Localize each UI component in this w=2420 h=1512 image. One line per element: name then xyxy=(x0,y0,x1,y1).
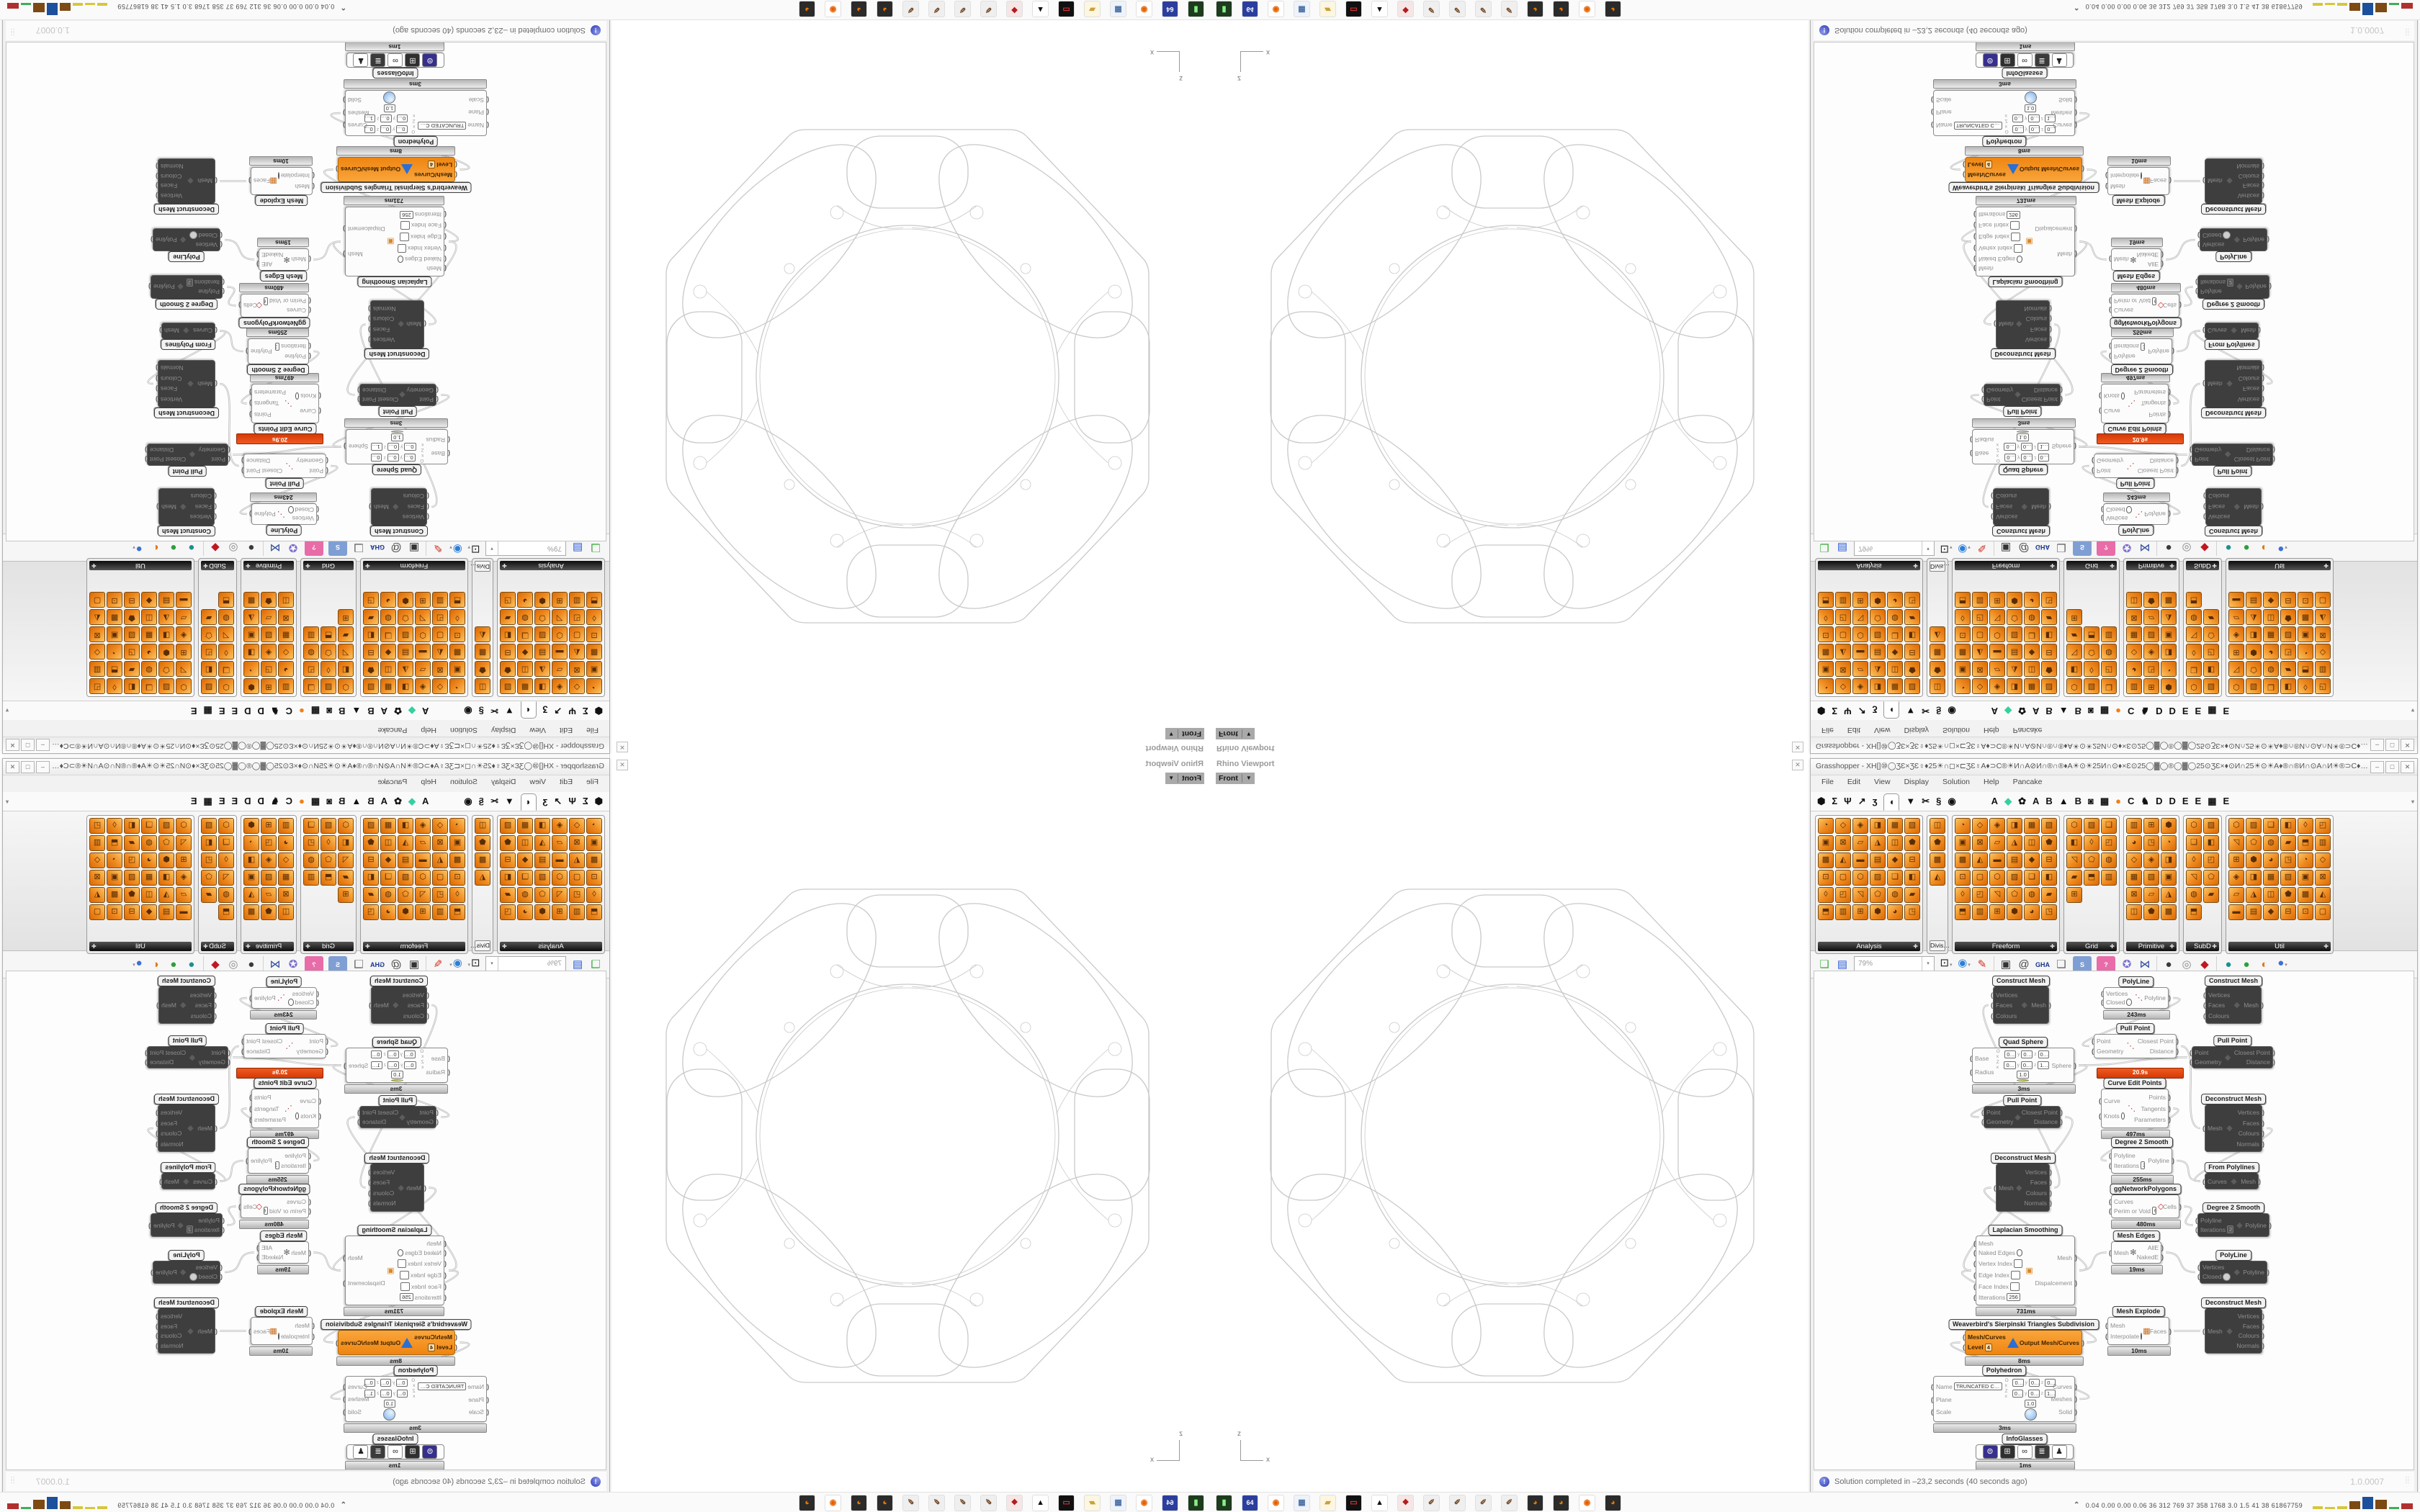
balloons-icon[interactable]: ✪ xyxy=(287,540,300,556)
gh-node-qs[interactable]: BaseRadiusO x0.0y0.0z0.0Z x0.0y0.0z1.01.… xyxy=(1972,429,2074,464)
component-icon[interactable]: ▨ xyxy=(534,870,550,886)
component-icon[interactable]: ▱ xyxy=(1852,661,1868,677)
ribbon-tab-22[interactable]: D xyxy=(2156,703,2162,718)
component-icon[interactable]: ◰ xyxy=(2101,661,2117,677)
ribbon-group-label[interactable]: Grid✚ xyxy=(2066,942,2117,951)
calculator-icon[interactable]: ▦ xyxy=(1110,1,1126,18)
component-icon[interactable]: ⬢ xyxy=(398,904,413,920)
firefox-icon[interactable]: ◉ xyxy=(1579,1495,1595,1511)
palette-icon[interactable]: ✐ xyxy=(928,1495,945,1511)
infoglasses-widget-icon[interactable]: ♟ xyxy=(2052,1445,2067,1459)
component-icon[interactable]: ◫ xyxy=(475,678,490,694)
component-icon[interactable]: ▧ xyxy=(1904,678,1920,694)
maximize-button[interactable]: □ xyxy=(2385,739,2399,751)
component-icon[interactable]: ◨ xyxy=(2007,678,2022,694)
ribbon-tab-14[interactable]: B xyxy=(367,703,374,718)
component-icon[interactable]: ▥ xyxy=(89,661,105,677)
component-icon[interactable]: ◈ xyxy=(176,626,192,642)
ribbon-tab-25[interactable]: E xyxy=(2195,703,2202,718)
gh-node-cm1[interactable]: VerticesFacesColours◆Mesh xyxy=(1993,488,2049,526)
component-icon[interactable]: ❏ xyxy=(1887,870,1903,886)
component-icon[interactable]: ◆ xyxy=(380,644,396,660)
gh-node-ig[interactable]: ⊜⊞∞≣♟ xyxy=(1976,1444,2074,1459)
component-icon[interactable]: ▨ xyxy=(2084,818,2099,834)
infoglasses-widget-icon[interactable]: ♟ xyxy=(354,1445,369,1459)
orange-ball-icon[interactable]: ◐ xyxy=(2258,540,2271,556)
ribbon-tab-26[interactable]: ▦ xyxy=(2208,794,2216,809)
component-icon[interactable]: ⊟ xyxy=(363,644,379,660)
folder-icon[interactable]: ▰ xyxy=(1319,1,1336,18)
ribbon-tab-4[interactable]: ʒ xyxy=(543,703,548,718)
gh-node-pp2[interactable]: PointGeometry◆Closest PointDistance xyxy=(147,1046,228,1068)
component-icon[interactable]: ◳ xyxy=(500,592,516,608)
component-icon[interactable]: ◍ xyxy=(2101,644,2117,660)
close-icon[interactable]: ✕ xyxy=(617,760,628,770)
component-icon[interactable]: ▬ xyxy=(415,852,431,868)
component-icon[interactable]: ⊡ xyxy=(449,870,465,886)
gh-node-pl1[interactable]: VerticesClosed⋱Polyline xyxy=(251,987,317,1009)
help-box-icon[interactable]: ? xyxy=(2097,539,2115,557)
terminal-icon[interactable]: ▮ xyxy=(1216,1,1232,18)
gh-node-d2sd[interactable]: PolylineIterations2◆Polyline xyxy=(151,275,223,299)
component-icon[interactable]: ◭ xyxy=(475,626,490,642)
gh-node-d2sd[interactable]: PolylineIterations2◆Polyline xyxy=(151,1213,223,1237)
component-icon[interactable]: ⬡ xyxy=(338,818,354,834)
ribbon-tab-16[interactable]: B xyxy=(339,703,345,718)
component-icon[interactable]: ◇ xyxy=(432,678,448,694)
component-icon[interactable]: ◹ xyxy=(218,626,234,642)
component-icon[interactable]: ◕ xyxy=(278,835,294,851)
component-icon[interactable]: ◰ xyxy=(201,852,217,868)
component-icon[interactable]: ◔ xyxy=(2161,661,2177,677)
component-icon[interactable]: ◫ xyxy=(2126,592,2142,608)
ribbon-group-label[interactable]: Analysis✚ xyxy=(500,561,602,570)
component-icon[interactable]: ◊ xyxy=(449,609,465,625)
gh-node-lap[interactable]: MeshNaked EdgesVertex IndexEdge IndexFac… xyxy=(1976,1236,2075,1305)
component-icon[interactable]: ◊ xyxy=(2084,835,2099,851)
grasshopper-title-bar[interactable]: Grasshopper - XH[]⑩◯ƷƐ×ƷƐ♀♦25☀∩◻×⊏ƷƐ♀A♦⊃… xyxy=(3,737,609,753)
palette-icon[interactable]: ✐ xyxy=(902,1,919,18)
component-icon[interactable]: ◊ xyxy=(321,661,336,677)
gh-node-pp1[interactable]: PointGeometry⋱Closest PointDistance xyxy=(2094,454,2177,478)
component-icon[interactable]: ◮ xyxy=(2007,835,2022,851)
component-icon[interactable]: ◈ xyxy=(1989,818,2005,834)
close-icon[interactable]: ✕ xyxy=(617,742,628,752)
component-icon[interactable]: ▱ xyxy=(2228,887,2244,903)
ribbon-tab-23[interactable]: D xyxy=(2169,703,2175,718)
find-icon[interactable]: S xyxy=(328,539,347,557)
gh-node-mx[interactable]: MeshInterpolate▦Faces xyxy=(2107,1317,2169,1345)
component-icon[interactable]: ⊠ xyxy=(1972,835,1988,851)
gh-node-mx[interactable]: MeshInterpolate▦Faces xyxy=(251,167,313,195)
component-icon[interactable]: ◮ xyxy=(2246,887,2262,903)
ribbon-tab-23[interactable]: D xyxy=(2169,794,2175,809)
component-icon[interactable]: ⊡ xyxy=(2298,904,2313,920)
component-icon[interactable]: ⬒ xyxy=(107,661,122,677)
component-icon[interactable]: ◰ xyxy=(569,887,585,903)
menu-item-pancake[interactable]: Pancake xyxy=(2013,778,2043,792)
component-icon[interactable]: ◫ xyxy=(2263,609,2279,625)
component-icon[interactable]: ◹ xyxy=(552,609,568,625)
component-icon[interactable]: ◨ xyxy=(534,678,550,694)
component-icon[interactable]: ▥ xyxy=(569,592,585,608)
component-icon[interactable]: ▥ xyxy=(2315,661,2331,677)
ribbon-tab-15[interactable]: ▲ xyxy=(2059,794,2069,809)
component-icon[interactable]: ▣ xyxy=(1818,835,1834,851)
calculator-icon[interactable]: ▦ xyxy=(1110,1495,1126,1511)
component-icon[interactable]: ◆ xyxy=(141,904,157,920)
component-icon[interactable]: ▰ xyxy=(338,626,354,642)
component-icon[interactable]: ◹ xyxy=(2228,661,2244,677)
component-icon[interactable]: ◆ xyxy=(2263,592,2279,608)
component-icon[interactable]: ⬒ xyxy=(2298,661,2313,677)
component-icon[interactable]: ▨ xyxy=(1870,870,1886,886)
component-icon[interactable]: ⬟ xyxy=(2143,592,2159,608)
group-expand-icon[interactable]: ✚ xyxy=(2323,561,2329,570)
component-icon[interactable]: ▥ xyxy=(1972,592,1988,608)
ribbon-tab-17[interactable]: ◙ xyxy=(2088,703,2094,718)
component-icon[interactable]: ◇ xyxy=(1972,818,1988,834)
blender-icon[interactable]: ◕ xyxy=(799,1495,815,1511)
gh-node-pld[interactable]: VerticesClosed◆Polyline xyxy=(153,228,220,251)
component-icon[interactable]: ⬒ xyxy=(449,592,465,608)
component-icon[interactable]: ▨ xyxy=(158,818,174,834)
blender-icon[interactable]: ◕ xyxy=(1553,1,1569,18)
component-icon[interactable]: ◹ xyxy=(1989,887,2005,903)
component-icon[interactable]: ◮ xyxy=(1870,661,1886,677)
component-icon[interactable]: ⊠ xyxy=(2126,609,2142,625)
component-icon[interactable]: ▧ xyxy=(500,678,516,694)
component-icon[interactable]: ▬ xyxy=(1852,852,1868,868)
component-icon[interactable]: ◍ xyxy=(517,887,533,903)
ribbon-tab-10[interactable]: A xyxy=(422,703,429,718)
component-icon[interactable]: ◆ xyxy=(2024,852,2040,868)
menu-item-pancake[interactable]: Pancake xyxy=(378,778,408,792)
component-icon[interactable]: ⬟ xyxy=(1904,835,1920,851)
component-icon[interactable]: ▦ xyxy=(2263,626,2279,642)
ribbon-tab-0[interactable]: ⬢ xyxy=(1817,703,1825,718)
component-icon[interactable]: ▱ xyxy=(2143,609,2159,625)
component-icon[interactable]: ▧ xyxy=(363,678,379,694)
component-icon[interactable]: ◕ xyxy=(141,644,157,660)
component-icon[interactable]: ⬠ xyxy=(321,644,336,660)
component-icon[interactable]: ⊟ xyxy=(124,904,140,920)
component-icon[interactable]: ◈ xyxy=(415,818,431,834)
component-icon[interactable]: ◹ xyxy=(415,887,431,903)
ribbon-tab-1[interactable]: Σ xyxy=(583,703,588,718)
blender-icon[interactable]: ◕ xyxy=(1605,1,1621,18)
component-icon[interactable]: ◍ xyxy=(380,609,396,625)
component-icon[interactable]: ◭ xyxy=(2315,609,2331,625)
component-icon[interactable]: ⊠ xyxy=(1972,661,1988,677)
component-icon[interactable]: ▥ xyxy=(2126,818,2142,834)
component-icon[interactable]: ▤ xyxy=(1870,644,1886,660)
component-icon[interactable]: ❏ xyxy=(141,818,157,834)
gh-node-cm1[interactable]: VerticesFacesColours◆Mesh xyxy=(371,488,427,526)
component-icon[interactable]: ◫ xyxy=(475,818,490,834)
component-icon[interactable]: ⬢ xyxy=(534,592,550,608)
component-icon[interactable]: ▤ xyxy=(534,644,550,660)
component-icon[interactable]: ▤ xyxy=(2007,852,2022,868)
component-icon[interactable]: ◊ xyxy=(2186,644,2202,660)
component-icon[interactable]: ⬠ xyxy=(2246,835,2262,851)
component-icon[interactable]: ▩ xyxy=(2298,887,2313,903)
component-icon[interactable]: ◰ xyxy=(303,835,319,851)
component-icon[interactable]: ▣ xyxy=(243,870,259,886)
component-icon[interactable]: ▨ xyxy=(158,678,174,694)
component-icon[interactable]: ◳ xyxy=(2041,592,2057,608)
gh-node-dmr2[interactable]: Mesh◆VerticesFacesColoursNormals xyxy=(158,158,215,204)
ribbon-tab-3[interactable]: ↗ xyxy=(1858,794,1866,809)
minimize-button[interactable]: – xyxy=(36,761,50,773)
component-icon[interactable]: ▨ xyxy=(534,626,550,642)
component-icon[interactable]: ◊ xyxy=(586,609,602,625)
component-icon[interactable]: ◧ xyxy=(2203,661,2219,677)
component-icon[interactable]: ◨ xyxy=(398,818,413,834)
component-icon[interactable]: ◰ xyxy=(2315,678,2331,694)
component-icon[interactable]: ◧ xyxy=(2280,818,2296,834)
component-icon[interactable]: ▱ xyxy=(1989,835,2005,851)
component-icon[interactable]: ◊ xyxy=(1818,609,1834,625)
palette-icon[interactable]: ✐ xyxy=(1475,1495,1492,1511)
gem-icon[interactable]: ◆ xyxy=(209,540,222,556)
gh-node-dmr1[interactable]: Mesh◆VerticesFacesColoursNormals xyxy=(2205,1104,2262,1152)
ribbon-tab-18[interactable]: ▦ xyxy=(2100,794,2109,809)
infoglasses-widget-icon[interactable]: ⊜ xyxy=(423,1445,438,1459)
component-icon[interactable]: ⬡ xyxy=(1989,626,2005,642)
component-icon[interactable]: ◈ xyxy=(2228,870,2244,886)
ribbon-group-label[interactable]: Divis… xyxy=(475,940,490,951)
component-icon[interactable]: ⬟ xyxy=(363,835,379,851)
component-icon[interactable]: ◮ xyxy=(398,661,413,677)
component-icon[interactable]: ⊞ xyxy=(2228,852,2244,868)
component-icon[interactable]: ▧ xyxy=(2143,626,2159,642)
ribbon-group-label[interactable]: Grid✚ xyxy=(303,561,354,570)
ribbon-tab-19[interactable]: ● xyxy=(299,794,305,809)
save-file-icon[interactable]: ▤ xyxy=(571,540,584,556)
group-expand-icon[interactable]: ✚ xyxy=(2110,561,2115,570)
component-icon[interactable]: ◧ xyxy=(124,678,140,694)
component-icon[interactable]: ▧ xyxy=(124,870,140,886)
ribbon-tab-19[interactable]: ● xyxy=(2115,794,2121,809)
galapagos-icon[interactable]: ⋈ xyxy=(269,540,282,556)
component-icon[interactable]: ⊠ xyxy=(89,626,105,642)
component-icon[interactable]: ⬟ xyxy=(124,887,140,903)
component-icon[interactable]: ⬠ xyxy=(398,609,413,625)
palette-icon[interactable]: ✐ xyxy=(1475,1,1492,18)
ribbon-tab-25[interactable]: E xyxy=(219,794,225,809)
vhs-icon[interactable]: ▭ xyxy=(1058,1495,1075,1511)
component-icon[interactable]: ⬢ xyxy=(2007,592,2022,608)
component-icon[interactable]: ▰ xyxy=(1904,609,1920,625)
component-icon[interactable]: ◧ xyxy=(201,835,217,851)
component-icon[interactable]: ⬡ xyxy=(1852,626,1868,642)
component-icon[interactable]: ▬ xyxy=(552,852,568,868)
component-icon[interactable]: ▢ xyxy=(569,870,585,886)
gh-node-dmr1[interactable]: Mesh◆VerticesFacesColoursNormals xyxy=(158,360,215,408)
green-ball-icon[interactable]: ● xyxy=(2240,540,2253,556)
gh-node-dmr2[interactable]: Mesh◆VerticesFacesColoursNormals xyxy=(158,1308,215,1354)
component-icon[interactable]: ◍ xyxy=(2186,609,2202,625)
remote-panel-icon[interactable]: @ xyxy=(390,540,403,556)
component-icon[interactable]: ⬡ xyxy=(218,678,234,694)
component-icon[interactable]: ▦ xyxy=(141,626,157,642)
ribbon-tab-6[interactable]: ▼ xyxy=(505,703,514,718)
component-icon[interactable]: ◕ xyxy=(1887,592,1903,608)
mountain-icon[interactable]: ▲ xyxy=(1371,1495,1388,1511)
component-icon[interactable]: ⊞ xyxy=(2066,887,2082,903)
component-icon[interactable]: ▨ xyxy=(2203,818,2219,834)
gh-node-lap[interactable]: MeshNaked EdgesVertex IndexEdge IndexFac… xyxy=(345,1236,444,1305)
component-icon[interactable]: ⊞ xyxy=(1989,904,2005,920)
component-icon[interactable]: ▦ xyxy=(517,818,533,834)
ribbon-group-label[interactable]: Primitive✚ xyxy=(243,561,294,570)
component-icon[interactable]: ◧ xyxy=(2066,835,2082,851)
component-icon[interactable]: ⬒ xyxy=(449,904,465,920)
ribbon-tab-6[interactable]: ▼ xyxy=(1906,794,1915,809)
ribbon-tab-7[interactable]: ✂ xyxy=(1922,794,1930,809)
component-icon[interactable]: ⬠ xyxy=(1870,609,1886,625)
group-expand-icon[interactable]: ✚ xyxy=(502,561,507,570)
infoglasses-widget-icon[interactable]: ∞ xyxy=(388,53,403,67)
component-icon[interactable]: ◮ xyxy=(2161,887,2177,903)
group-expand-icon[interactable]: ✚ xyxy=(203,561,208,570)
zoom-level-combo[interactable]: 79%▾ xyxy=(485,539,566,556)
firefox-icon[interactable]: ◉ xyxy=(825,1,841,18)
component-icon[interactable]: ▱ xyxy=(415,661,431,677)
component-icon[interactable]: ▨ xyxy=(2007,870,2022,886)
component-icon[interactable]: ▨ xyxy=(2084,678,2099,694)
component-icon[interactable]: ◧ xyxy=(124,818,140,834)
component-icon[interactable]: ▬ xyxy=(2228,904,2244,920)
group-expand-icon[interactable]: ✚ xyxy=(2050,942,2055,951)
group-expand-icon[interactable]: ✚ xyxy=(246,942,251,951)
close-button[interactable]: ✕ xyxy=(2401,739,2414,751)
component-icon[interactable]: ⬡ xyxy=(176,818,192,834)
gh-node-d2sd[interactable]: PolylineIterations2◆Polyline xyxy=(2197,275,2269,299)
ribbon-tab-7[interactable]: ✂ xyxy=(490,703,498,718)
component-icon[interactable]: ⬒ xyxy=(586,592,602,608)
component-icon[interactable]: ◰ xyxy=(2203,644,2219,660)
ribbon-tab-15[interactable]: ▲ xyxy=(351,703,361,718)
ribbon-group-label[interactable]: Grid✚ xyxy=(303,942,354,951)
ribbon-tab-10[interactable]: A xyxy=(1991,794,1998,809)
component-icon[interactable]: ◊ xyxy=(2186,852,2202,868)
viewport-filter-icon[interactable]: ▣ xyxy=(408,540,421,556)
component-icon[interactable]: ⬒ xyxy=(1955,904,1971,920)
component-icon[interactable]: ◍ xyxy=(2263,661,2279,677)
component-icon[interactable]: ◍ xyxy=(303,852,319,868)
component-icon[interactable]: ⊡ xyxy=(586,626,602,642)
group-expand-icon[interactable]: ✚ xyxy=(1913,942,1918,951)
resize-grip-icon[interactable]: ∶∶∶∶ xyxy=(10,24,22,35)
pattern-icon[interactable]: ❖ xyxy=(1397,1,1414,18)
viewport-view-dropdown[interactable]: Front ▼ xyxy=(1165,773,1204,784)
component-icon[interactable]: ◮ xyxy=(2161,609,2177,625)
component-icon[interactable]: ◇ xyxy=(278,644,294,660)
component-icon[interactable]: ▥ xyxy=(432,904,448,920)
gh-node-ggn[interactable]: CurvesPerim or Void65536◇Cells xyxy=(241,1194,309,1218)
component-icon[interactable]: ⊞ xyxy=(415,904,431,920)
component-icon[interactable]: ◹ xyxy=(1852,887,1868,903)
component-icon[interactable]: ⬢ xyxy=(243,678,259,694)
component-icon[interactable]: ◊ xyxy=(586,887,602,903)
ribbon-tab-9[interactable]: ◉ xyxy=(464,794,472,809)
component-icon[interactable]: ⊞ xyxy=(2066,609,2082,625)
gh-node-dml[interactable]: Mesh◆VerticesFacesColoursNormals xyxy=(1996,300,2050,348)
blender-icon[interactable]: ◕ xyxy=(877,1495,893,1511)
component-icon[interactable]: ⬡ xyxy=(176,678,192,694)
close-button[interactable]: ✕ xyxy=(6,739,19,751)
component-icon[interactable]: ▱ xyxy=(415,835,431,851)
component-icon[interactable]: ▥ xyxy=(2101,870,2117,886)
component-icon[interactable]: ⊠ xyxy=(1835,661,1851,677)
component-icon[interactable]: ⬢ xyxy=(243,818,259,834)
palette-icon[interactable]: ✐ xyxy=(954,1,971,18)
component-icon[interactable]: ◰ xyxy=(89,678,105,694)
cluster-icon[interactable]: ● xyxy=(2162,540,2175,556)
component-icon[interactable]: ⬒ xyxy=(321,870,336,886)
component-icon[interactable]: ⬠ xyxy=(158,835,174,851)
component-icon[interactable]: ◔ xyxy=(2298,852,2313,868)
component-icon[interactable]: ◫ xyxy=(517,661,533,677)
component-icon[interactable]: ⊟ xyxy=(2280,592,2296,608)
component-icon[interactable]: ◮ xyxy=(243,887,259,903)
component-icon[interactable]: ◆ xyxy=(141,592,157,608)
component-icon[interactable]: ◇ xyxy=(2126,852,2142,868)
component-icon[interactable]: ⊠ xyxy=(89,870,105,886)
component-icon[interactable]: ⊡ xyxy=(1955,626,1971,642)
ribbon-tab-24[interactable]: E xyxy=(2182,794,2189,809)
component-icon[interactable]: ▢ xyxy=(89,904,105,920)
gh-node-cep[interactable]: CurveKnots⋱PointsTangentsParameters xyxy=(251,384,319,423)
component-icon[interactable]: ❏ xyxy=(2263,818,2279,834)
component-icon[interactable]: ⊟ xyxy=(500,644,516,660)
gh-node-dml[interactable]: Mesh◆VerticesFacesColoursNormals xyxy=(370,1164,424,1212)
component-icon[interactable]: ⊡ xyxy=(586,870,602,886)
ribbon-tab-13[interactable]: A xyxy=(381,794,387,809)
component-icon[interactable]: ▣ xyxy=(586,661,602,677)
component-icon[interactable]: ⬡ xyxy=(338,678,354,694)
component-icon[interactable]: ◭ xyxy=(2315,887,2331,903)
component-icon[interactable]: ◹ xyxy=(2066,852,2082,868)
gh-node-dmr2[interactable]: Mesh◆VerticesFacesColoursNormals xyxy=(2205,1308,2262,1354)
ribbon-tab-1[interactable]: Σ xyxy=(583,794,588,809)
component-icon[interactable]: ◈ xyxy=(1852,678,1868,694)
menu-item-help[interactable]: Help xyxy=(421,778,436,792)
component-icon[interactable]: ◕ xyxy=(141,852,157,868)
component-icon[interactable]: ◰ xyxy=(201,644,217,660)
component-icon[interactable]: ◊ xyxy=(1818,887,1834,903)
mountain-icon[interactable]: ▲ xyxy=(1032,1495,1049,1511)
ribbon-tab-2[interactable]: Ψ xyxy=(1844,703,1852,718)
component-icon[interactable]: ◊ xyxy=(1955,887,1971,903)
component-icon[interactable]: ⬟ xyxy=(1930,661,1945,677)
component-icon[interactable]: ❏ xyxy=(2024,870,2040,886)
component-icon[interactable]: ▰ xyxy=(2041,887,2057,903)
ribbon-tab-21[interactable]: ♞ xyxy=(271,703,279,718)
component-icon[interactable]: ◨ xyxy=(243,644,259,660)
gh-node-lap[interactable]: MeshNaked EdgesVertex IndexEdge IndexFac… xyxy=(345,207,444,276)
component-icon[interactable]: ◫ xyxy=(278,904,294,920)
group-expand-icon[interactable]: ✚ xyxy=(2212,942,2217,951)
menu-item-view[interactable]: View xyxy=(1874,720,1891,734)
gh-node-pp1[interactable]: PointGeometry⋱Closest PointDistance xyxy=(243,1034,326,1058)
component-icon[interactable]: ❏ xyxy=(380,870,396,886)
gh-node-mx[interactable]: MeshInterpolate▦Faces xyxy=(251,1317,313,1345)
component-icon[interactable]: ◰ xyxy=(2101,835,2117,851)
folder-icon[interactable]: ▰ xyxy=(1084,1495,1101,1511)
